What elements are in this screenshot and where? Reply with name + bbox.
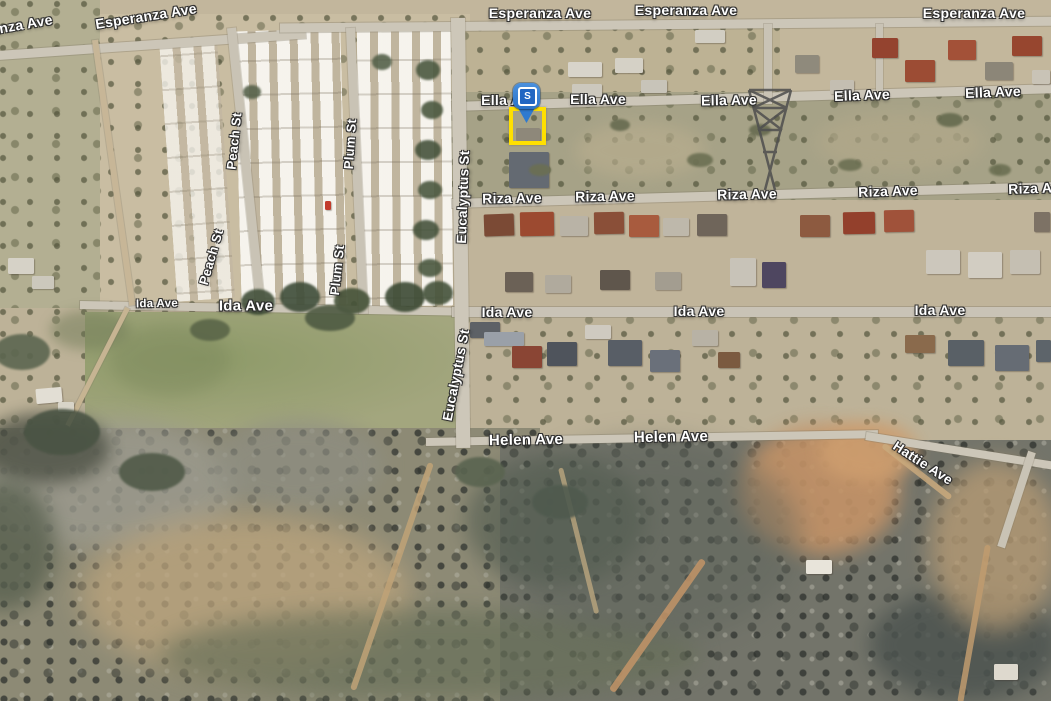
tree <box>372 54 392 70</box>
house-roof <box>608 340 642 366</box>
street-label-ella-ave: Ella Ave <box>834 86 890 104</box>
house-roof <box>905 335 935 353</box>
street-label-esperanza-ave: Esperanza Ave <box>489 5 591 21</box>
house-roof <box>1036 340 1051 362</box>
street-label-ella-ave: Ella Ave <box>965 83 1021 101</box>
tree <box>937 113 963 127</box>
house-roof <box>872 38 898 58</box>
house-roof <box>594 212 624 235</box>
tree <box>418 259 442 277</box>
tree <box>423 281 453 305</box>
street-label-esperanza-ave: Esperanza Ave <box>923 5 1025 21</box>
house-roof <box>806 560 832 574</box>
house-roof <box>32 276 54 289</box>
house-roof <box>800 215 830 237</box>
street-label-riza-ave: Riza Ave <box>575 187 635 204</box>
street-label-helen-ave: Helen Ave <box>634 428 708 446</box>
tree <box>989 164 1011 176</box>
terrain-wash <box>575 123 705 178</box>
tree <box>190 319 230 341</box>
house-roof <box>926 250 960 274</box>
house-roof <box>1012 36 1042 56</box>
house-roof <box>600 270 630 290</box>
house-roof <box>995 345 1029 371</box>
house-roof <box>325 201 331 210</box>
tree <box>610 119 630 131</box>
property-marker-pin[interactable]: S <box>513 83 540 109</box>
street-label-riza-ave: Riza Ave <box>858 182 918 200</box>
tree <box>385 282 425 312</box>
house-roof <box>505 272 533 292</box>
house-roof <box>512 346 542 368</box>
pin-letter: S <box>524 92 531 102</box>
tree <box>416 60 440 80</box>
house-roof <box>585 325 611 339</box>
house-roof <box>884 210 914 233</box>
tree <box>413 220 439 240</box>
house-roof <box>948 340 984 366</box>
street-label-ella-ave: Ella Ave <box>701 92 757 109</box>
house-roof <box>994 664 1018 680</box>
house-roof <box>968 252 1002 278</box>
house-roof <box>568 62 602 77</box>
house-roof <box>547 342 577 366</box>
street-label-esperanza-ave: Esperanza Ave <box>635 2 737 18</box>
house-roof <box>795 55 819 73</box>
house-roof <box>520 212 554 237</box>
house-roof <box>1010 250 1040 274</box>
street-label-ida-ave: Ida Ave <box>674 303 725 319</box>
house-roof <box>948 40 976 60</box>
pin-badge: S <box>518 87 537 106</box>
house-roof <box>655 272 681 290</box>
tree <box>415 140 441 160</box>
street-label-ida-ave: Ida Ave <box>482 304 533 320</box>
house-roof <box>663 218 689 236</box>
house-roof <box>697 214 727 236</box>
tree <box>421 101 443 119</box>
house-roof <box>8 258 34 274</box>
house-roof <box>1032 70 1050 84</box>
street-label-riza-ave: Riza Ave <box>717 185 777 202</box>
house-roof <box>762 262 786 288</box>
house-roof <box>484 332 524 346</box>
street-label-ida-ave: Ida Ave <box>136 298 178 311</box>
house-roof <box>985 62 1013 80</box>
tree <box>838 159 862 171</box>
street-label-ida-ave: Ida Ave <box>915 302 966 318</box>
house-roof <box>843 212 875 235</box>
house-roof <box>692 330 718 346</box>
tree <box>455 457 505 487</box>
house-roof <box>560 216 588 236</box>
house-roof <box>1034 212 1050 232</box>
house-roof <box>629 215 659 237</box>
tree <box>119 453 185 491</box>
satellite-map-viewport[interactable]: Esperanza Ave Esperanza Ave Esperanza Av… <box>0 0 1051 701</box>
tree <box>532 485 588 519</box>
street-label-helen-ave: Helen Ave <box>489 431 563 449</box>
tree <box>529 164 551 176</box>
tree <box>687 153 713 167</box>
street-label-ella-ave: Ella Ave <box>570 91 626 107</box>
tree <box>243 85 261 99</box>
street-label-riza-ave: Riza Ave <box>1008 179 1051 197</box>
house-roof <box>545 275 571 293</box>
house-roof <box>650 350 680 372</box>
house-roof <box>484 213 515 236</box>
street-label-ida-ave: Ida Ave <box>219 298 273 315</box>
house-roof <box>695 30 725 43</box>
tree <box>305 305 355 331</box>
tree <box>24 409 100 455</box>
terrain-wash <box>215 420 385 510</box>
house-roof <box>615 58 643 73</box>
tree <box>418 181 442 199</box>
street-label-riza-ave: Riza Ave <box>482 189 542 206</box>
house-roof <box>905 60 935 82</box>
house-roof <box>718 352 740 368</box>
house-roof <box>641 80 667 93</box>
house-roof <box>730 258 756 286</box>
